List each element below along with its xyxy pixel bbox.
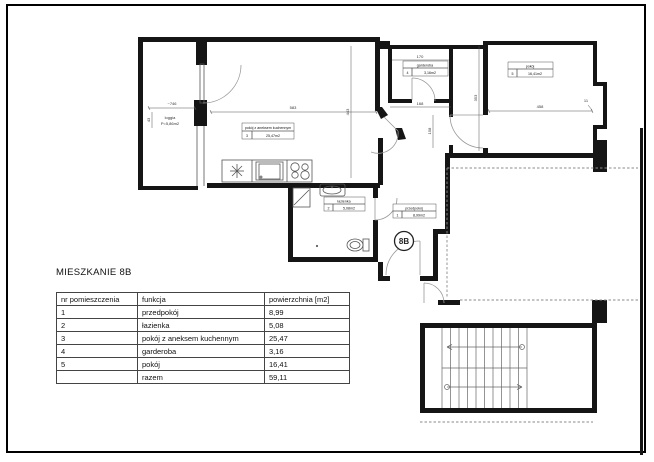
oven-icon: [256, 162, 283, 180]
loggia-label: loggia P=5,86m2: [161, 115, 180, 126]
room4-area: 3,16m2: [424, 71, 436, 75]
toilet-icon: [347, 239, 369, 251]
dim-room5-height: 353: [473, 94, 478, 101]
loggia-name: loggia: [165, 115, 176, 120]
cell-area: 16,41: [265, 358, 350, 371]
bathroom-fixtures: [293, 184, 369, 251]
header-nr: nr pomieszczenia: [57, 293, 138, 306]
dim-loggia-width: ~746: [167, 101, 177, 106]
table-row: 3 pokój z aneksem kuchennym 25,47: [57, 332, 350, 345]
stair-direction-arrow-down: [445, 385, 523, 390]
staircase: [442, 328, 527, 408]
room1-area: 8,99m2: [413, 214, 425, 218]
room-label-room1: przedpokój 1 8,99m2: [393, 204, 436, 218]
loggia-area: P=5,86m2: [161, 121, 180, 126]
dim-hall-height: 158: [427, 127, 432, 134]
cell-nr: 5: [57, 358, 138, 371]
rooms-table: nr pomieszczenia funkcja powierzchnia [m…: [56, 292, 350, 384]
dim-hall-width: 168: [417, 101, 424, 106]
room5-area: 16,41m2: [528, 72, 542, 76]
floor-drain-icon: [316, 245, 317, 246]
table-total-row: razem 59,11: [57, 371, 350, 384]
neighbor-boundaries: [420, 168, 638, 422]
diagonal-door-arc: [371, 131, 398, 153]
page-title: MIESZKANIE 8B: [56, 267, 132, 278]
room-label-room5: pokój 5 16,41m2: [508, 62, 553, 77]
washer-icon: [293, 188, 310, 207]
header-funkcja: funkcja: [138, 293, 265, 306]
floor-plan: ~746 43 583 443 170 168 158 458 353 11: [0, 0, 654, 462]
cell-funkcja: łazienka: [138, 319, 265, 332]
cell-empty: [57, 371, 138, 384]
drawing-sheet: ~746 43 583 443 170 168 158 458 353 11: [0, 0, 654, 462]
table-header-row: nr pomieszczenia funkcja powierzchnia [m…: [57, 293, 350, 306]
room-label-room3: pokój z aneksem kuchennym 3 25,47m2: [242, 123, 294, 139]
room5-number: 5: [512, 72, 514, 76]
walls: [138, 37, 643, 455]
cell-nr: 4: [57, 345, 138, 358]
total-value: 59,11: [265, 371, 350, 384]
kitchen-fixtures: [222, 160, 312, 182]
table-row: 2 łazienka 5,08: [57, 319, 350, 332]
header-powierzchnia: powierzchnia [m2]: [265, 293, 350, 306]
dim-room3-height: 443: [345, 108, 350, 115]
room3-number: 3: [246, 134, 248, 138]
stair-direction-arrow-up: [447, 345, 525, 350]
dim-room3-width: 583: [290, 105, 297, 110]
dim-jamb: 11: [584, 98, 589, 103]
room2-name: łazienka: [337, 200, 350, 204]
room1-name: przedpokój: [405, 207, 423, 211]
room-label-room2: łazienka 2 5,08m2: [324, 197, 365, 211]
total-label: razem: [138, 371, 265, 384]
dim-garderoba-width: 170: [417, 54, 424, 59]
unit-badge: 8B: [395, 232, 414, 251]
dim-room5-width: 458: [537, 104, 544, 109]
room4-name: garderoba: [417, 64, 433, 68]
room1-number: 1: [397, 214, 399, 218]
cell-funkcja: pokój: [138, 358, 265, 371]
cell-funkcja: pokój z aneksem kuchennym: [138, 332, 265, 345]
room5-door-arc: [450, 115, 483, 148]
cell-nr: 2: [57, 319, 138, 332]
cell-funkcja: przedpokój: [138, 306, 265, 319]
cell-funkcja: garderoba: [138, 345, 265, 358]
table-row: 4 garderoba 3,16: [57, 345, 350, 358]
table-row: 1 przedpokój 8,99: [57, 306, 350, 319]
kitchen-sink-icon: [230, 164, 244, 178]
room-label-room4: garderoba 4 3,16m2: [403, 61, 448, 76]
cell-nr: 3: [57, 332, 138, 345]
cell-area: 8,99: [265, 306, 350, 319]
cell-area: 5,08: [265, 319, 350, 332]
room4-number: 4: [407, 71, 409, 75]
dim-loggia-height: 43: [146, 117, 151, 122]
cell-area: 3,16: [265, 345, 350, 358]
unit-badge-label: 8B: [399, 237, 409, 246]
balcony-door-arc: [203, 65, 241, 103]
table-row: 5 pokój 16,41: [57, 358, 350, 371]
room3-area: 25,47m2: [266, 134, 280, 138]
room2-number: 2: [328, 207, 330, 211]
hob-icon: [291, 163, 309, 179]
room5-name: pokój: [526, 65, 535, 69]
garderoba-door-arc: [412, 78, 435, 101]
room3-name: pokój z aneksem kuchennym: [245, 126, 291, 130]
cell-area: 25,47: [265, 332, 350, 345]
diagonal-door-leaf: [384, 117, 398, 131]
room2-area: 5,08m2: [343, 207, 355, 211]
cell-nr: 1: [57, 306, 138, 319]
